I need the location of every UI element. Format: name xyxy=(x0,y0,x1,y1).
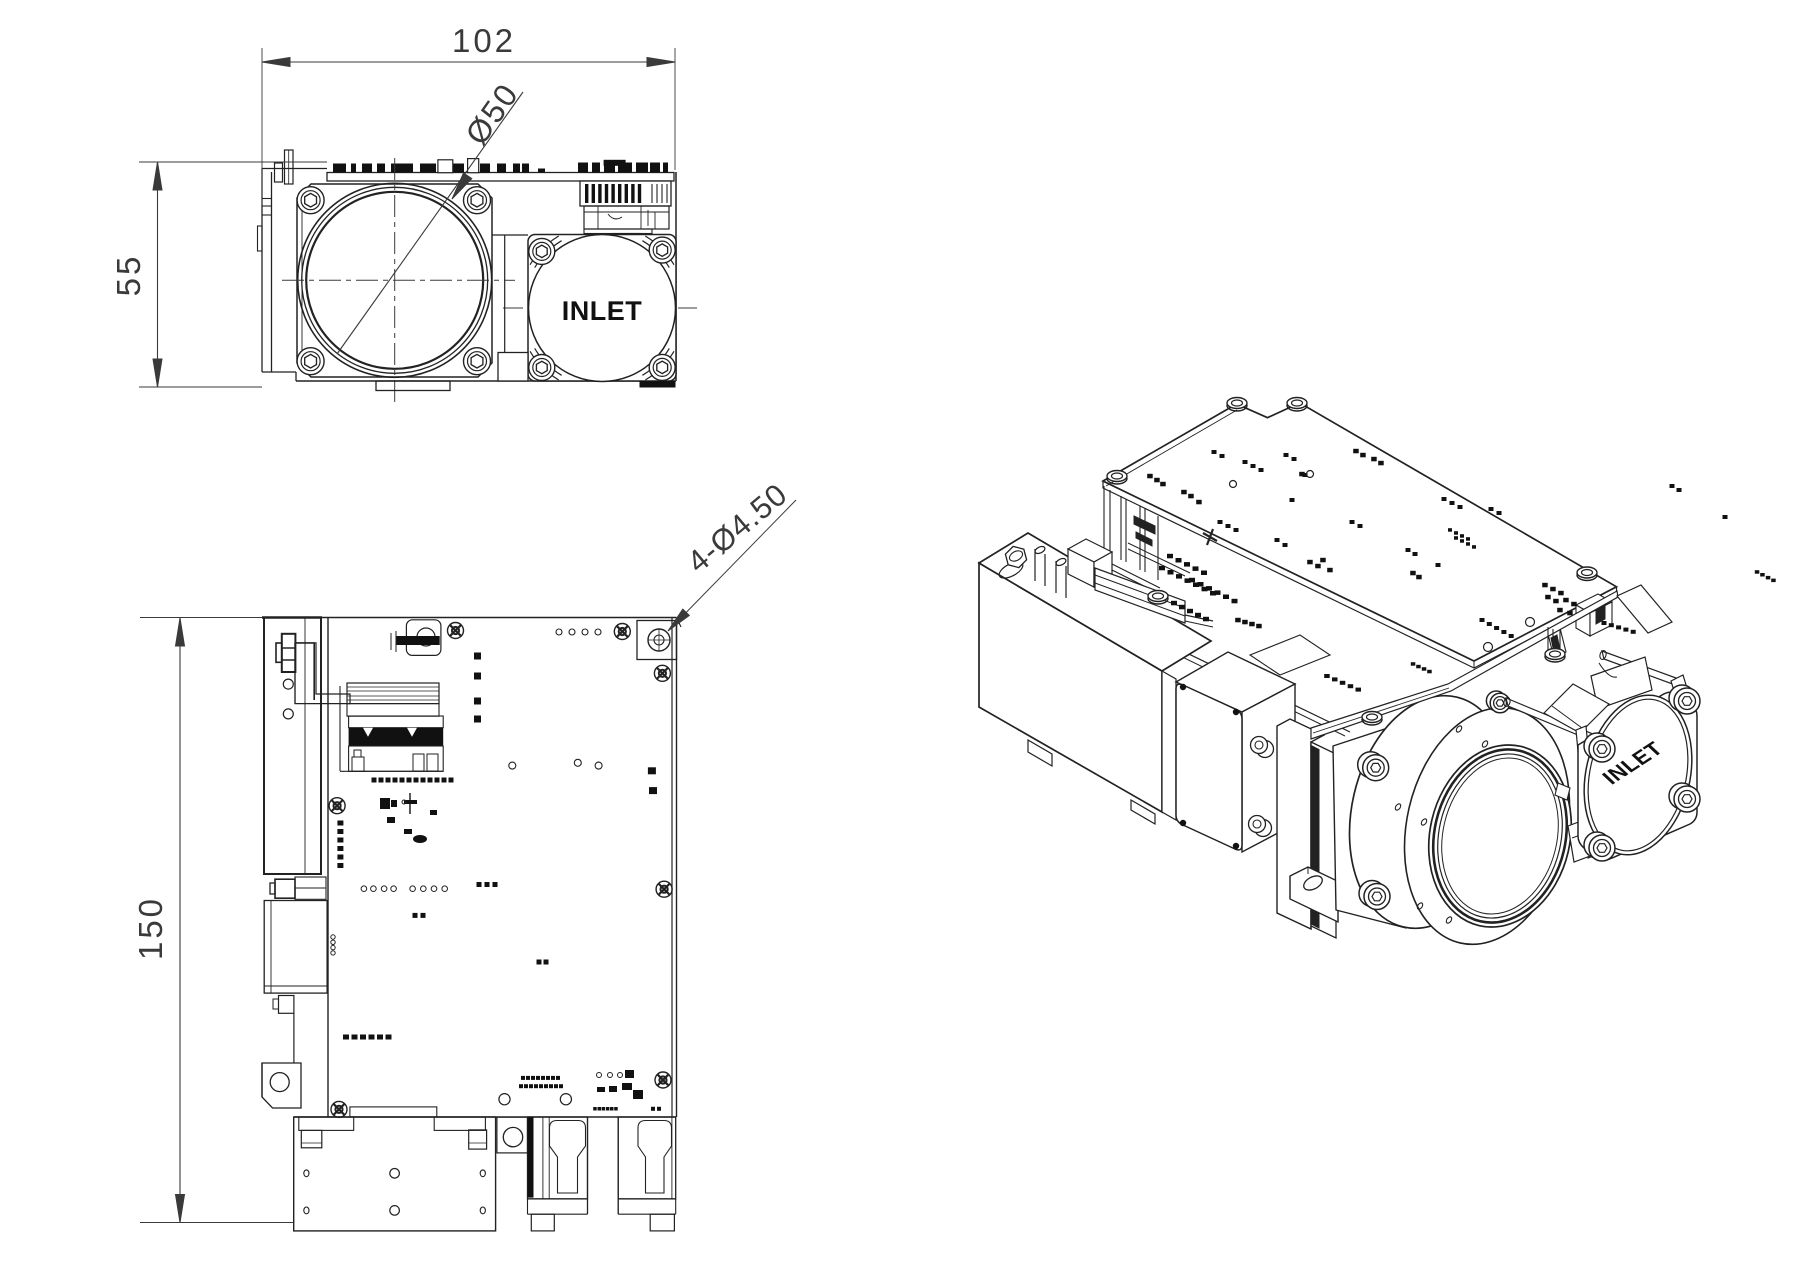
svg-text:55: 55 xyxy=(110,254,147,297)
svg-text:150: 150 xyxy=(132,896,169,960)
svg-text:102: 102 xyxy=(452,22,516,59)
svg-text:INLET: INLET xyxy=(562,296,643,326)
